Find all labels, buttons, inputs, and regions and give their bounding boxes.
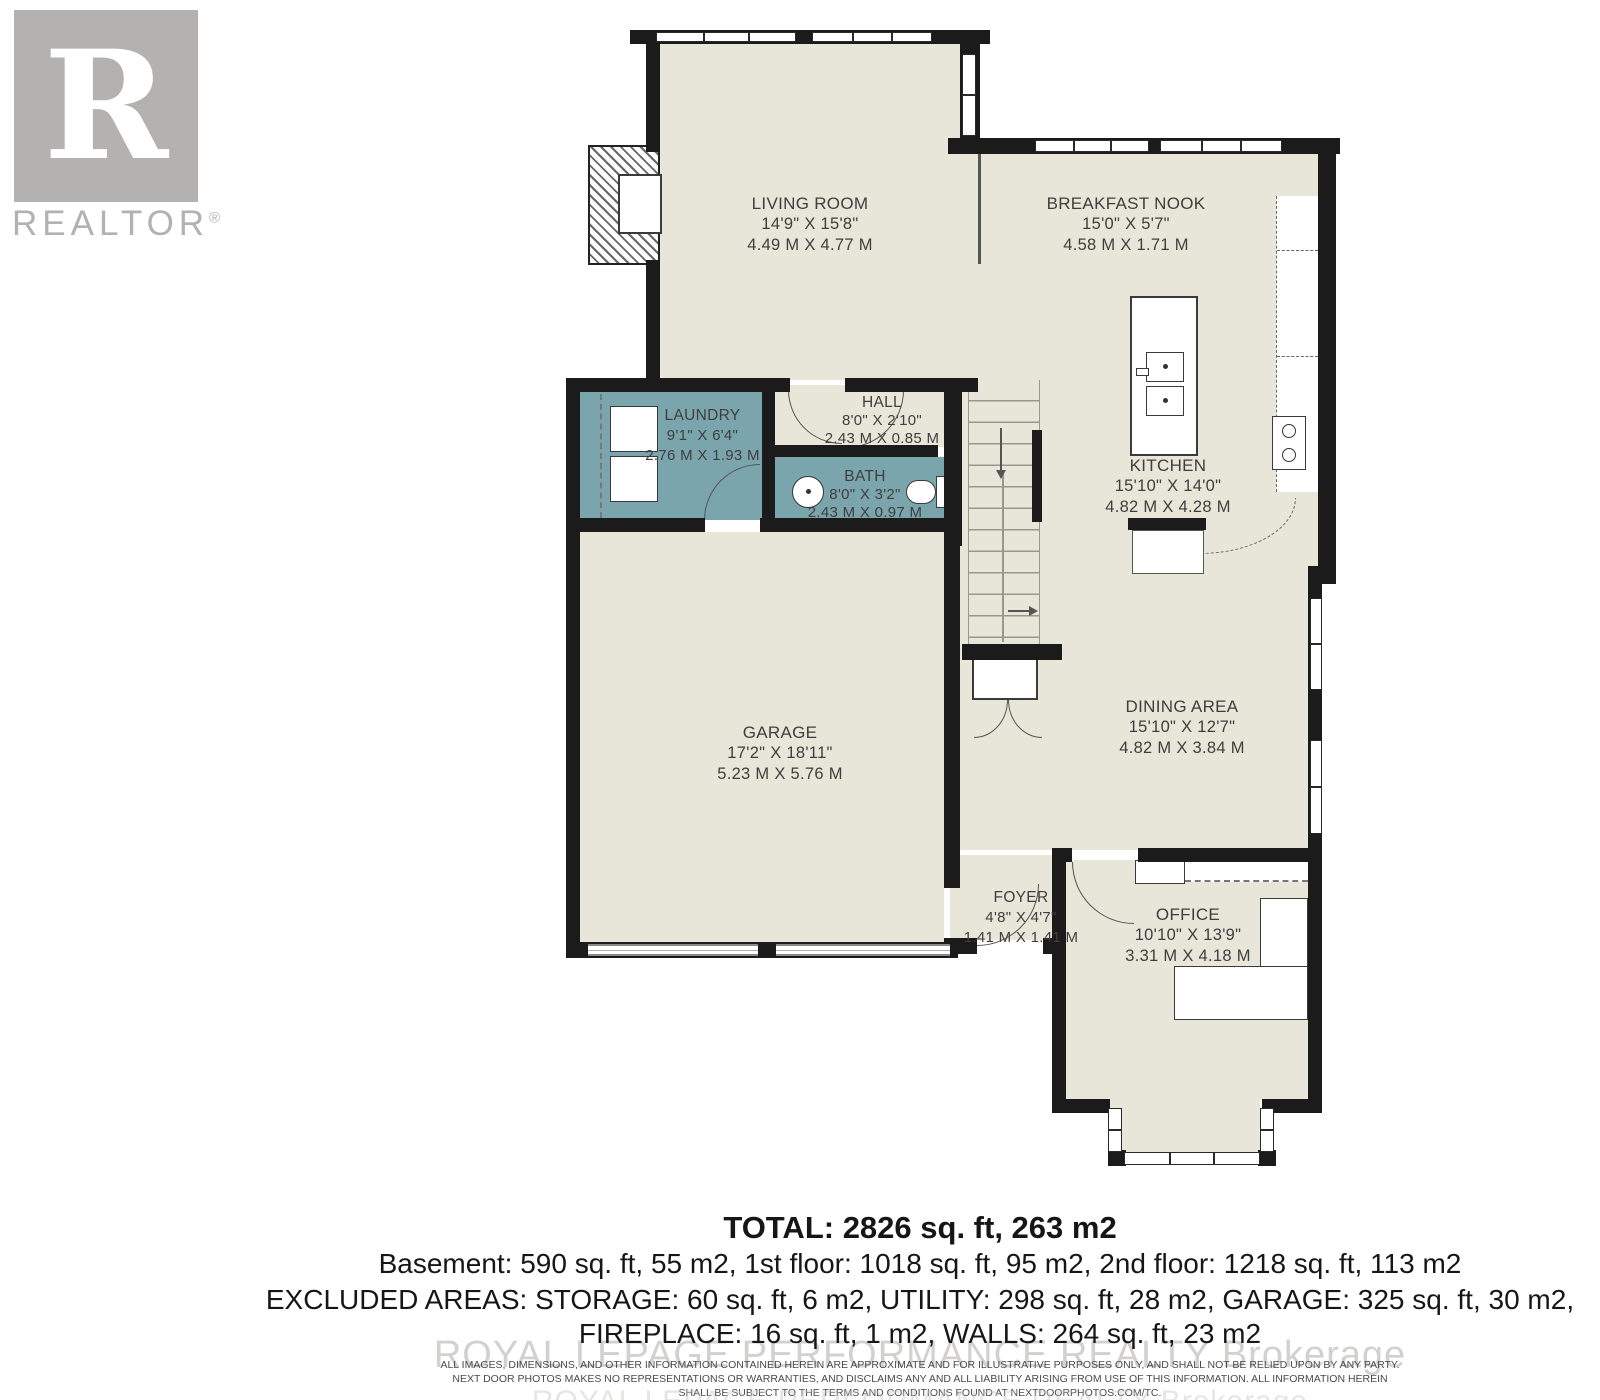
living-room-window	[656, 32, 796, 42]
room-label-breakfast-nook: BREAKFAST NOOK 15'0" X 5'7" 4.58 M X 1.7…	[976, 193, 1276, 256]
room-dim-metric: 4.49 M X 4.77 M	[660, 235, 960, 256]
room-dim-metric: 2.76 M X 1.93 M	[605, 446, 800, 466]
room-dim-imperial: 8'0" X 2'10"	[792, 412, 972, 430]
room-name: LAUNDRY	[605, 406, 800, 426]
wall-office-right	[1308, 855, 1322, 1113]
page: R REALTOR®	[0, 0, 1600, 1400]
island-sink-basin	[1146, 352, 1184, 382]
room-name: GARAGE	[630, 722, 930, 743]
room-name: LIVING ROOM	[660, 193, 960, 214]
room-dim-imperial: 9'1" X 6'4"	[605, 426, 800, 446]
room-name: BATH	[775, 468, 955, 486]
room-name: BREAKFAST NOOK	[976, 193, 1276, 214]
wall-stairs-bottom	[962, 644, 1062, 660]
stair-down-arrow-shaft	[1000, 428, 1002, 470]
room-name: HALL	[792, 394, 972, 412]
brokerage-watermark: ROYAL LEPAGE PERFORMANCE REALTY Brokerag…	[170, 1385, 1600, 1400]
room-dim-imperial: 8'0" X 3'2"	[775, 486, 955, 504]
dining-area-window	[1310, 598, 1322, 690]
room-dim-metric: 5.23 M X 5.76 M	[630, 764, 930, 785]
kitchen-counter-peninsula	[1132, 530, 1204, 574]
garage-door	[588, 944, 758, 956]
stair-right-arrow-shaft	[1008, 610, 1030, 612]
room-dim-imperial: 17'2" X 18'11"	[630, 743, 930, 764]
stair-divider-line	[1002, 470, 1004, 642]
stove-burner-icon	[1282, 424, 1296, 438]
room-name: OFFICE	[1038, 904, 1338, 925]
room-dim-imperial: 10'10" X 13'9"	[1038, 925, 1338, 946]
room-label-dining-area: DINING AREA 15'10" X 12'7" 4.82 M X 3.84…	[1032, 696, 1332, 759]
wall-garage-top	[566, 518, 705, 532]
wall-living-left-upper	[646, 30, 660, 152]
room-dim-imperial: 15'10" X 14'0"	[1018, 476, 1318, 497]
room-dim-metric: 4.82 M X 3.84 M	[1032, 738, 1332, 759]
floor-areas-text: Basement: 590 sq. ft, 55 m2, 1st floor: …	[170, 1248, 1600, 1280]
wall-living-bottom	[566, 378, 790, 392]
bay-window-front	[1124, 1152, 1260, 1165]
breakfast-nook-window	[1160, 140, 1282, 152]
bay-window-side	[1260, 1108, 1274, 1152]
room-name: DINING AREA	[1032, 696, 1332, 717]
room-dim-metric: 2.43 M X 0.85 M	[792, 430, 972, 448]
disclaimer-line: ALL IMAGES, DIMENSIONS, AND OTHER INFORM…	[170, 1358, 1600, 1372]
laundry-closet-dashed-line	[600, 394, 602, 518]
disclaimer-line: NEXT DOOR PHOTOS MAKES NO REPRESENTATION…	[170, 1372, 1600, 1386]
excluded-areas-text: FIREPLACE: 16 sq. ft, 1 m2, WALLS: 264 s…	[170, 1318, 1600, 1350]
wall-garage-right	[944, 378, 960, 888]
island-faucet	[1136, 368, 1149, 376]
bay-window-floor	[1108, 1099, 1260, 1152]
office-desk	[1174, 966, 1308, 1020]
wall-dining-bottom	[1138, 848, 1322, 862]
living-room-window	[812, 32, 932, 42]
room-dim-metric: 4.58 M X 1.71 M	[976, 235, 1276, 256]
room-label-garage: GARAGE 17'2" X 18'11" 5.23 M X 5.76 M	[630, 722, 930, 785]
wall-office-bottom	[1052, 1099, 1110, 1113]
wall-living-left-lower	[646, 260, 660, 390]
room-dim-imperial: 14'9" X 15'8"	[660, 214, 960, 235]
room-label-bath: BATH 8'0" X 3'2" 2.43 M X 0.97 M	[775, 468, 955, 522]
stair-down-arrow-icon	[996, 470, 1006, 479]
wall-left-outer	[566, 378, 580, 958]
wall-bay-corner	[1258, 1150, 1276, 1166]
wall-right-upper	[1318, 138, 1336, 584]
garage-door	[776, 944, 950, 956]
room-label-laundry: LAUNDRY 9'1" X 6'4" 2.76 M X 1.93 M	[605, 406, 800, 466]
room-dim-metric: 2.43 M X 0.97 M	[775, 504, 955, 522]
living-room-side-window	[962, 54, 976, 136]
room-dim-metric: 3.31 M X 4.18 M	[1038, 946, 1338, 967]
foyer-closet	[972, 658, 1038, 700]
island-sink-basin	[1146, 386, 1184, 416]
office-closet-strip	[1185, 860, 1308, 882]
office-closet-box	[1135, 860, 1185, 884]
room-label-living-room: LIVING ROOM 14'9" X 15'8" 4.49 M X 4.77 …	[660, 193, 960, 256]
floor-plan: LIVING ROOM 14'9" X 15'8" 4.49 M X 4.77 …	[0, 0, 1600, 1200]
room-label-hall: HALL 8'0" X 2'10" 2.43 M X 0.85 M	[792, 394, 972, 448]
bay-window-side	[1108, 1108, 1122, 1152]
room-label-office: OFFICE 10'10" X 13'9" 3.31 M X 4.18 M	[1038, 904, 1338, 967]
room-name: KITCHEN	[1018, 455, 1318, 476]
fireplace-firebox	[618, 174, 662, 234]
wall-kitchen-counter-stub	[1128, 518, 1206, 530]
room-dim-imperial: 15'0" X 5'7"	[976, 214, 1276, 235]
stair-right-arrow-icon	[1029, 606, 1038, 616]
breakfast-nook-window	[1035, 140, 1149, 152]
room-label-kitchen: KITCHEN 15'10" X 14'0" 4.82 M X 4.28 M	[1018, 455, 1318, 518]
excluded-areas-text: EXCLUDED AREAS: STORAGE: 60 sq. ft, 6 m2…	[170, 1284, 1600, 1316]
room-dim-imperial: 15'10" X 12'7"	[1032, 717, 1332, 738]
room-dim-metric: 4.82 M X 4.28 M	[1018, 497, 1318, 518]
total-area-text: TOTAL: 2826 sq. ft, 263 m2	[170, 1210, 1600, 1246]
